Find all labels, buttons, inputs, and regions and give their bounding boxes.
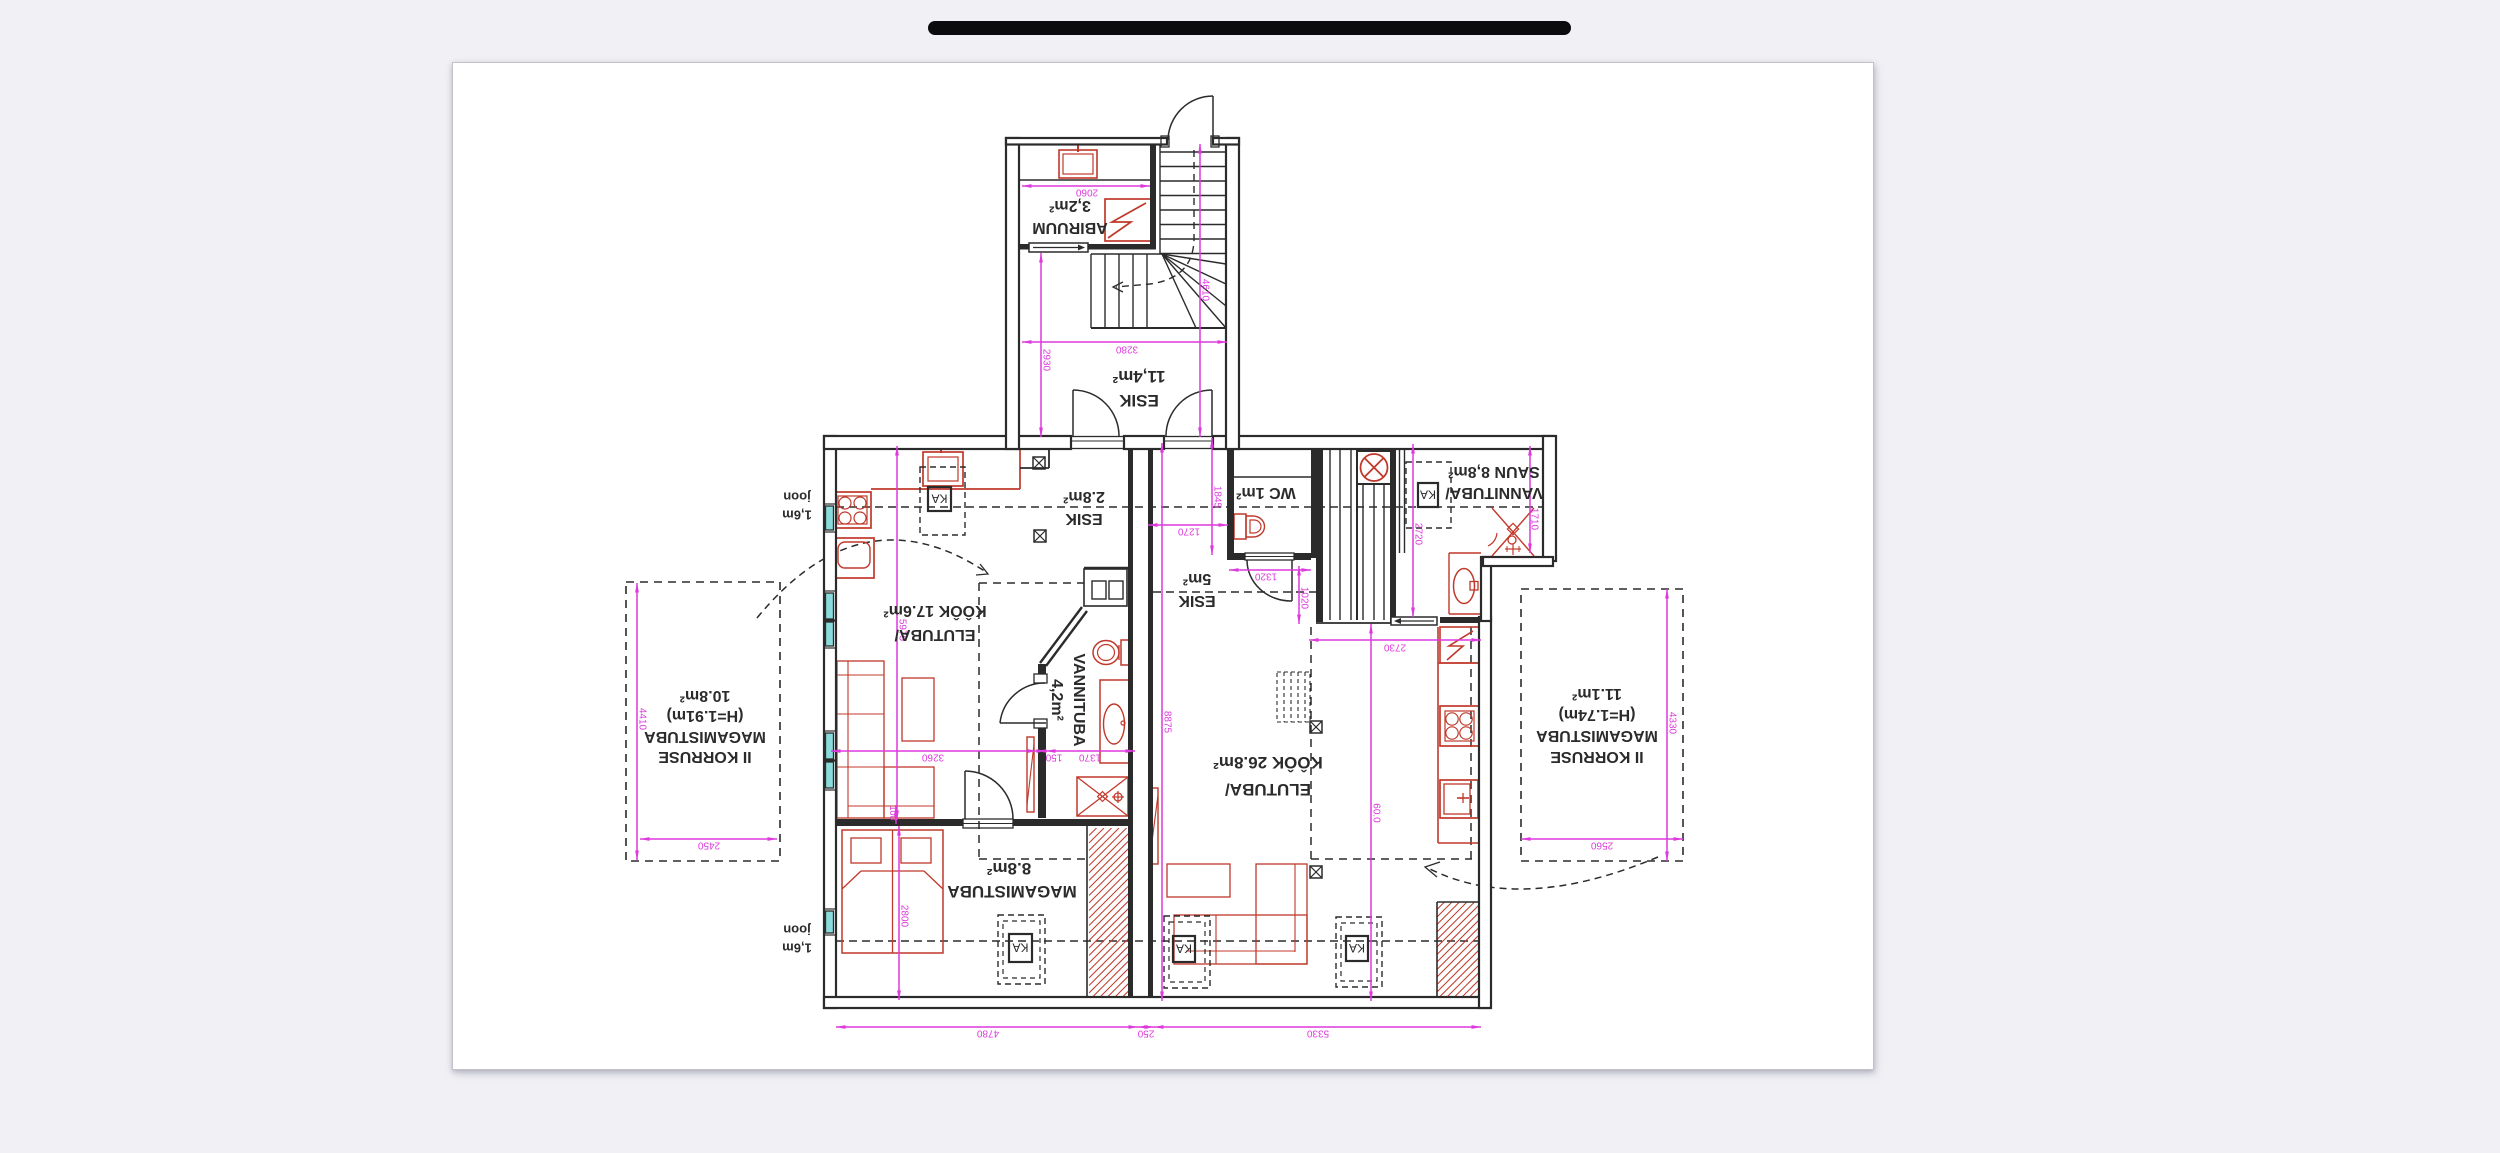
svg-text:4330: 4330 xyxy=(1666,712,1677,735)
svg-text:KA: KA xyxy=(1349,941,1365,955)
svg-text:KÔÔK 26.8m²: KÔÔK 26.8m² xyxy=(1213,753,1323,772)
svg-text:1370: 1370 xyxy=(1078,751,1101,762)
svg-text:2720: 2720 xyxy=(1412,523,1423,546)
svg-text:1320: 1320 xyxy=(1254,570,1277,581)
svg-text:joon: joon xyxy=(783,922,811,937)
svg-text:3,2m²: 3,2m² xyxy=(1049,197,1091,214)
svg-text:ESIK: ESIK xyxy=(1065,510,1103,527)
svg-text:11.1m²: 11.1m² xyxy=(1572,685,1622,702)
svg-text:KA: KA xyxy=(1012,941,1028,955)
svg-text:1,6m: 1,6m xyxy=(782,507,812,522)
svg-text:5330: 5330 xyxy=(1306,1027,1329,1038)
svg-text:2060: 2060 xyxy=(1075,186,1098,197)
svg-text:11,4m²: 11,4m² xyxy=(1112,367,1165,386)
svg-text:8.8m²: 8.8m² xyxy=(986,859,1031,878)
svg-text:KA: KA xyxy=(931,492,947,506)
svg-text:ESIK: ESIK xyxy=(1118,391,1158,410)
svg-text:KÔÔK 17.6m²: KÔÔK 17.6m² xyxy=(883,602,986,621)
svg-text:1,6m: 1,6m xyxy=(782,940,812,955)
svg-text:250: 250 xyxy=(1137,1027,1154,1038)
svg-text:1270: 1270 xyxy=(1177,525,1200,536)
svg-text:3260: 3260 xyxy=(921,751,944,762)
svg-text:4,2m²: 4,2m² xyxy=(1048,679,1065,721)
svg-text:2450: 2450 xyxy=(697,839,720,850)
svg-text:ESIK: ESIK xyxy=(1178,592,1216,609)
svg-text:4610: 4610 xyxy=(1199,279,1210,302)
svg-text:2560: 2560 xyxy=(1590,839,1613,850)
svg-text:5m²: 5m² xyxy=(1183,570,1211,587)
svg-text:8875: 8875 xyxy=(1161,711,1172,734)
svg-text:(H=1.91m): (H=1.91m) xyxy=(667,707,744,724)
svg-text:4780: 4780 xyxy=(976,1027,999,1038)
svg-text:1845: 1845 xyxy=(1211,486,1222,509)
svg-text:KA: KA xyxy=(1420,488,1436,502)
svg-text:MAGAMISTUBA: MAGAMISTUBA xyxy=(644,728,766,745)
svg-text:ELUTUBA/: ELUTUBA/ xyxy=(1225,780,1311,799)
svg-text:ELUTUBA/: ELUTUBA/ xyxy=(894,626,975,643)
svg-text:VANNITUBA: VANNITUBA xyxy=(1070,653,1087,746)
svg-text:joon: joon xyxy=(783,489,811,504)
svg-text:4410: 4410 xyxy=(636,708,647,731)
svg-text:1710: 1710 xyxy=(1528,508,1539,531)
svg-text:VANNITUBA/: VANNITUBA/ xyxy=(1445,484,1543,501)
svg-text:2730: 2730 xyxy=(1383,641,1406,652)
svg-text:MAGAMISTUBA: MAGAMISTUBA xyxy=(1536,727,1658,744)
svg-text:150: 150 xyxy=(1045,751,1062,762)
svg-text:2.8m²: 2.8m² xyxy=(1063,488,1105,505)
svg-text:ABIRUUM: ABIRUUM xyxy=(1032,219,1108,236)
svg-text:(H=1.74m): (H=1.74m) xyxy=(1559,706,1636,723)
svg-text:KA: KA xyxy=(1176,942,1192,956)
svg-text:SAUN 8,8m²: SAUN 8,8m² xyxy=(1448,463,1540,480)
svg-text:2800: 2800 xyxy=(898,905,909,928)
svg-text:II KORRUSE: II KORRUSE xyxy=(1550,748,1644,765)
svg-text:II KORRUSE: II KORRUSE xyxy=(658,748,752,765)
svg-text:2930: 2930 xyxy=(1040,349,1051,372)
svg-text:10.8m²: 10.8m² xyxy=(680,687,731,704)
svg-text:MAGAMISTUBA: MAGAMISTUBA xyxy=(947,882,1076,901)
svg-text:1020: 1020 xyxy=(1298,587,1309,610)
svg-text:WC 1m²: WC 1m² xyxy=(1236,484,1296,501)
svg-text:60.0: 60.0 xyxy=(1370,803,1381,823)
svg-text:3280: 3280 xyxy=(1115,343,1138,354)
